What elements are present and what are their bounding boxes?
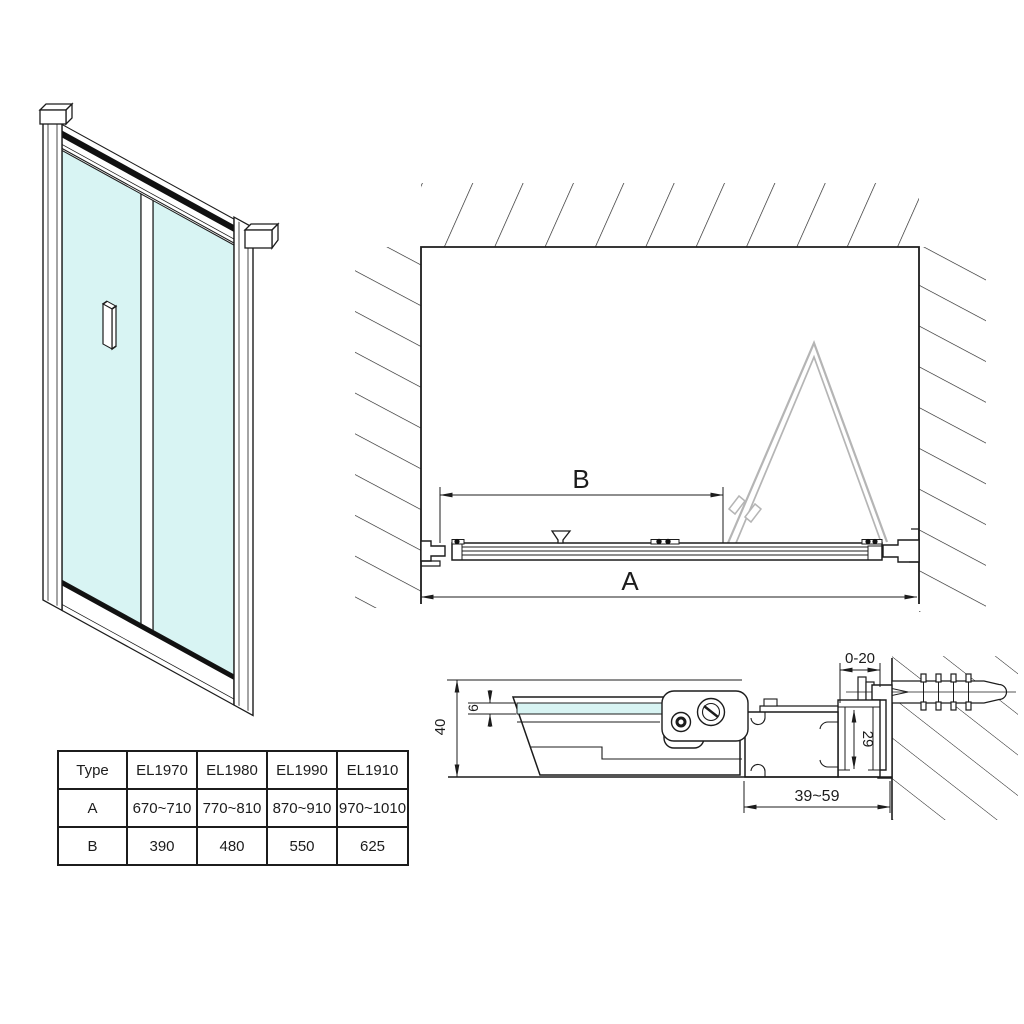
dim-b-label: B: [572, 464, 589, 494]
table-cell: 670~710: [127, 789, 197, 827]
door-mullion: [141, 194, 153, 631]
spec-table: Type EL1970 EL1980 EL1990 EL1910 A 670~7…: [57, 750, 409, 866]
door-track-plan: [421, 529, 919, 566]
door-handle: [103, 299, 116, 351]
door-3d-view: [40, 104, 278, 716]
door-stile-right: [234, 217, 253, 715]
table-cell: 770~810: [197, 789, 267, 827]
technical-drawing-page: B A: [0, 0, 1024, 1024]
wall-cap-left: [40, 104, 72, 124]
track-handle: [552, 531, 570, 543]
door-stile-left: [43, 112, 62, 610]
table-row-b: B 390 480 550 625: [58, 827, 408, 865]
table-header-model: EL1970: [127, 751, 197, 789]
table-cell: 625: [337, 827, 408, 865]
table-row-a: A 670~710 770~810 870~910 970~1010: [58, 789, 408, 827]
ghost-folded-door: [728, 343, 887, 543]
table-header-type: Type: [58, 751, 127, 789]
drawing-svg: B A: [0, 0, 1024, 1024]
dim-29-label: 29: [859, 731, 876, 748]
dim-39-59-label: 39~59: [795, 788, 840, 805]
wall-profile-right: [883, 540, 919, 562]
dimension-a: A: [421, 566, 917, 597]
table-cell: 870~910: [267, 789, 337, 827]
table-header-model: EL1990: [267, 751, 337, 789]
table-cell: 970~1010: [337, 789, 408, 827]
dimension-b: B: [440, 464, 723, 543]
table-cell: 390: [127, 827, 197, 865]
dim-0-20-label: 0-20: [845, 650, 875, 667]
section-view: 40 6 0-20 29 39~59: [432, 650, 1018, 820]
dim-6-label: 6: [465, 704, 481, 712]
wall-hatch-right: [919, 247, 986, 612]
dimension-6: 6: [465, 690, 516, 727]
glass-panel-left: [62, 150, 141, 623]
dimension-39-59: 39~59: [744, 781, 890, 813]
row-label: A: [58, 789, 127, 827]
rail-block: [745, 699, 838, 777]
wall-cap-right: [245, 224, 278, 248]
wall-hatch-left: [355, 247, 421, 608]
table-cell: 480: [197, 827, 267, 865]
wall-hatch-top: [421, 183, 919, 247]
table-header-row: Type EL1970 EL1980 EL1990 EL1910: [58, 751, 408, 789]
hinge-section: [662, 691, 748, 748]
plan-view: B A: [355, 183, 986, 612]
wall-profile-left: [421, 541, 445, 561]
track-bar: [452, 543, 882, 560]
ghost-handle: [729, 496, 761, 522]
table-cell: 550: [267, 827, 337, 865]
dim-40-label: 40: [432, 719, 449, 736]
dim-a-label: A: [621, 566, 639, 596]
dimension-40: 40: [432, 680, 457, 777]
glass-section: [517, 703, 664, 714]
table-header-model: EL1910: [337, 751, 408, 789]
table-header-model: EL1980: [197, 751, 267, 789]
glass-panel-right: [153, 201, 234, 676]
row-label: B: [58, 827, 127, 865]
